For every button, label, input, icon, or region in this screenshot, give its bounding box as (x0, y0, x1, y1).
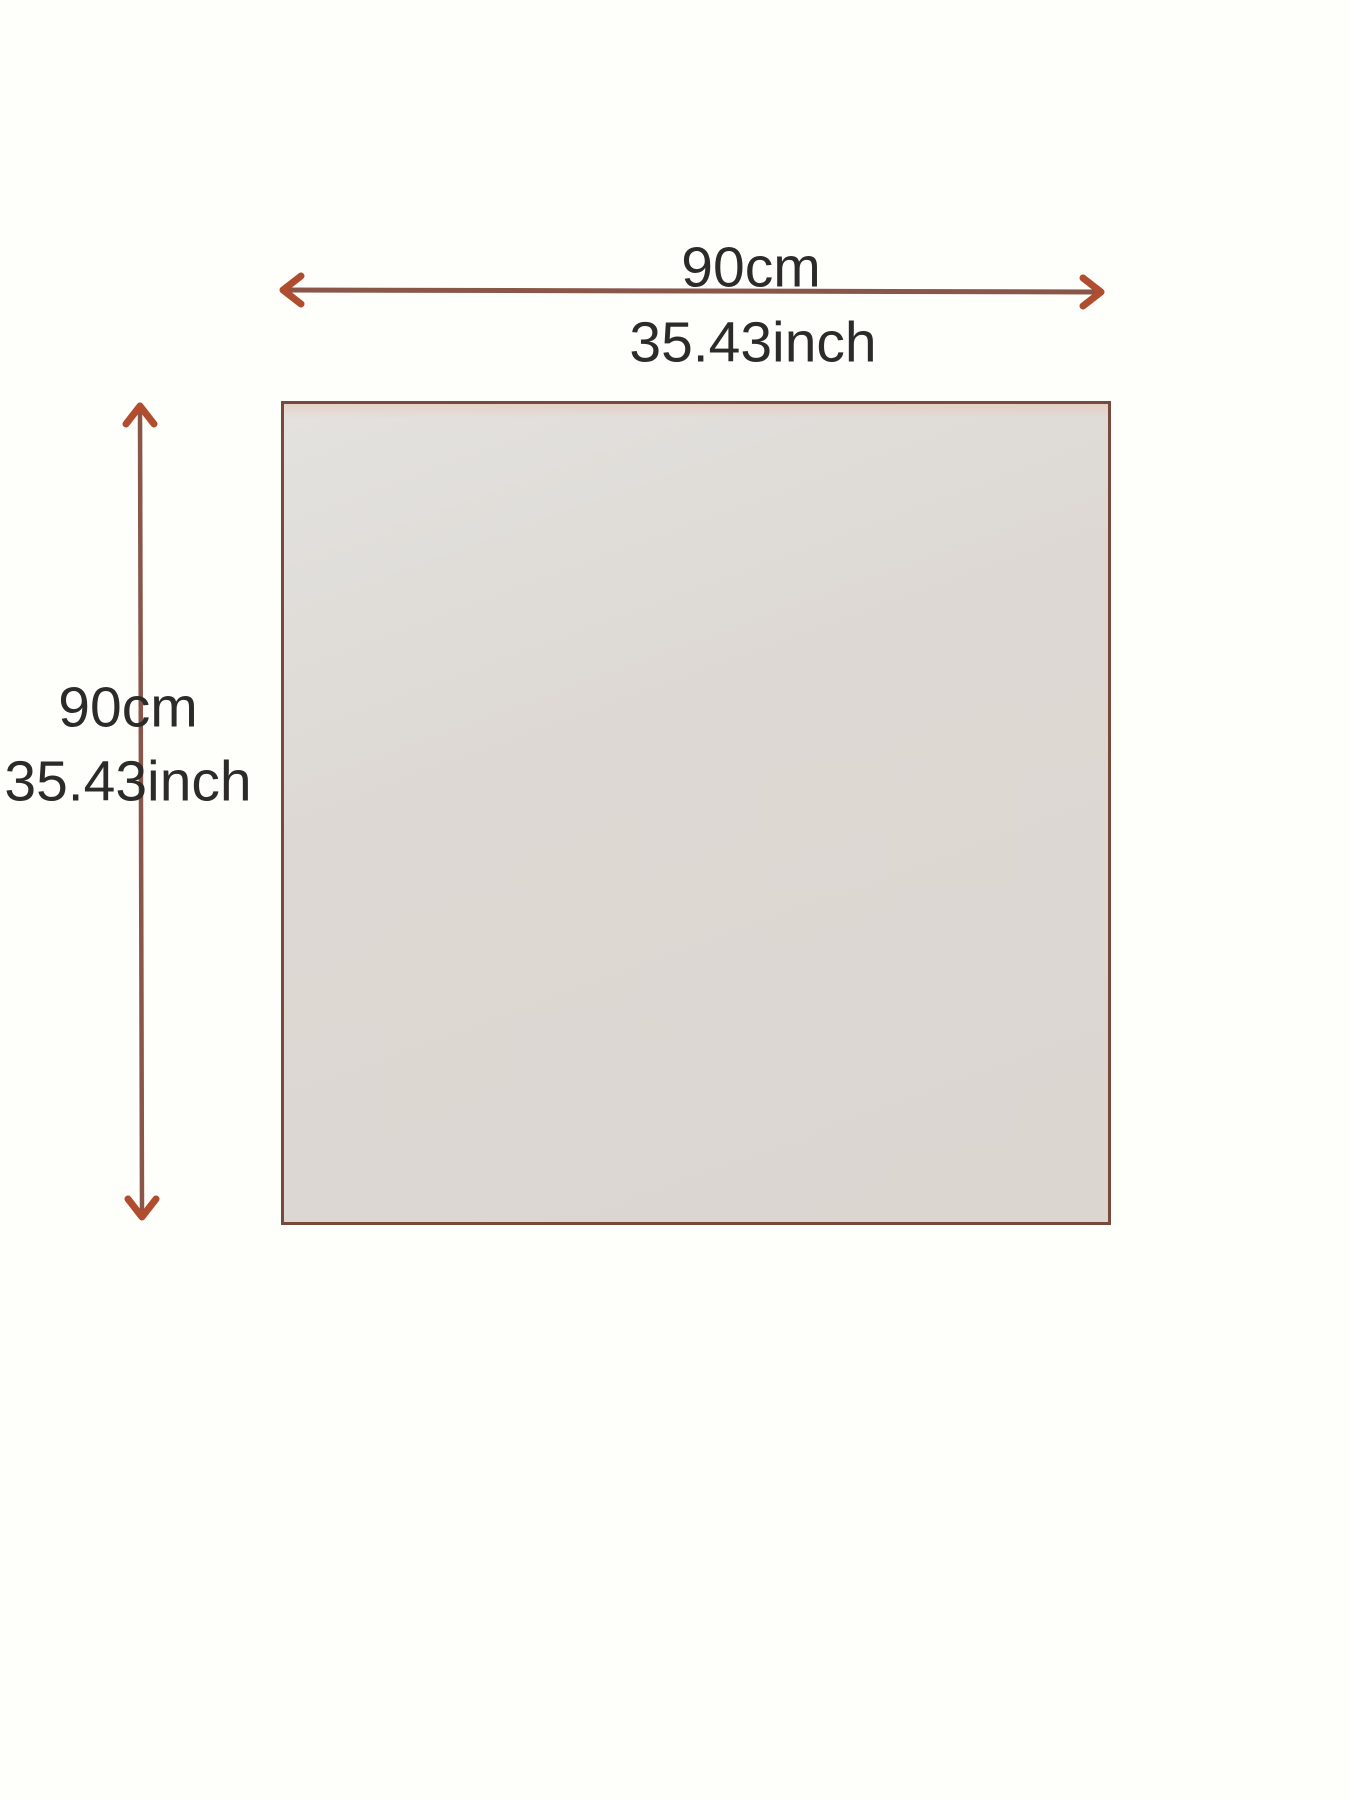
width-inch-label: 35.43inch (629, 315, 876, 372)
product-dimension-diagram: 90cm 35.43inch 90cm 35.43inch (0, 0, 1350, 1800)
height-cm-label: 90cm (58, 680, 197, 737)
width-cm-label: 90cm (681, 240, 820, 297)
fabric-swatch (281, 401, 1111, 1225)
height-inch-label: 35.43inch (4, 754, 251, 811)
